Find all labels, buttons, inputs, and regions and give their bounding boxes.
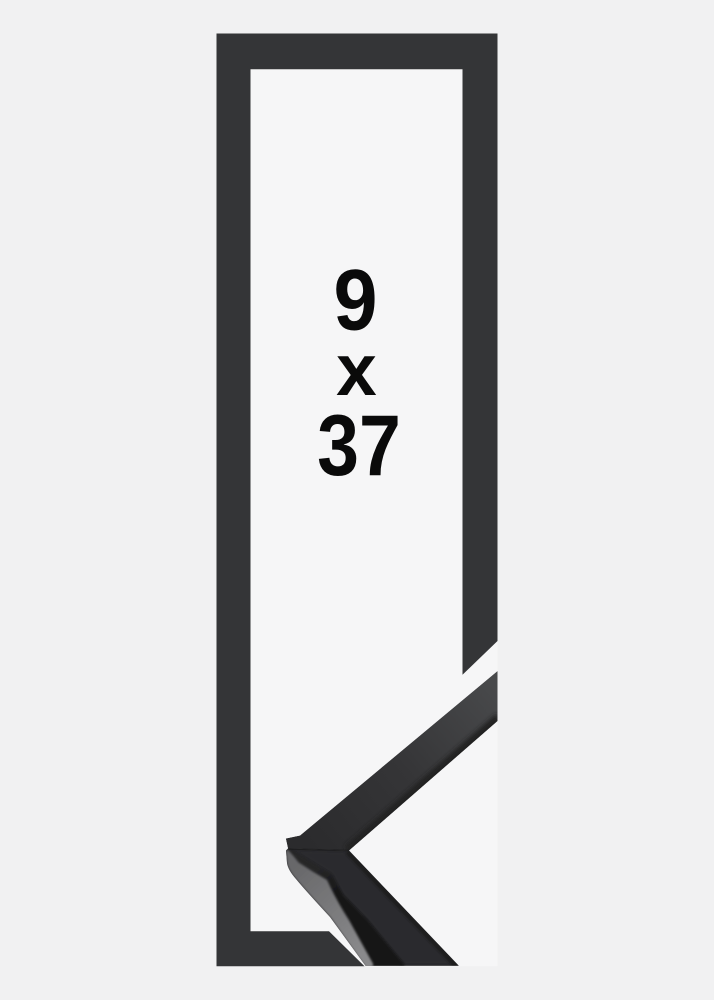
svg-text:37: 37 [317,399,401,495]
